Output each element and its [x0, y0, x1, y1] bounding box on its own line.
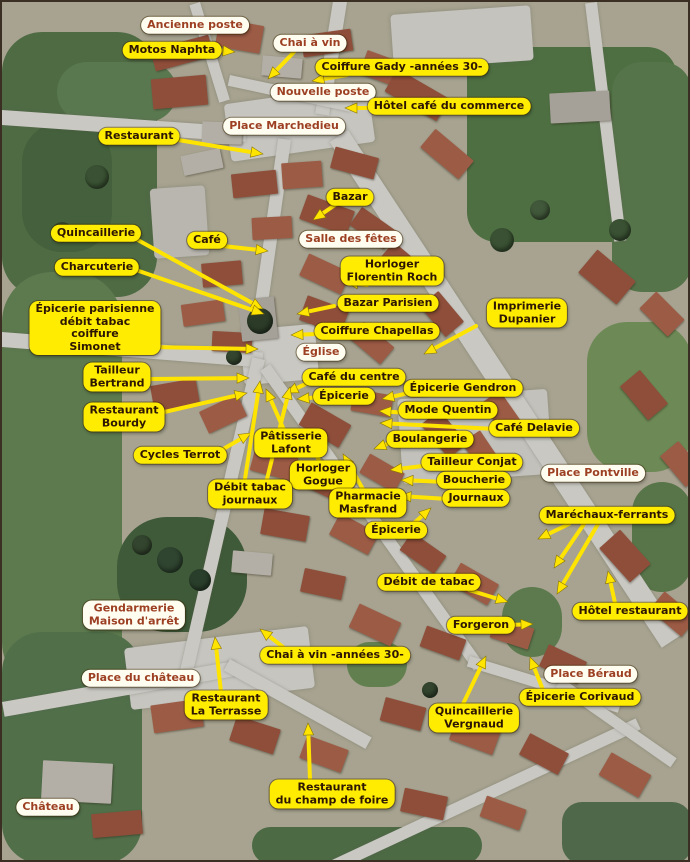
map-label-quincaillerie-vergnaud: Quincaillerie Vergnaud	[429, 704, 519, 733]
map-label-place-beraud: Place Béraud	[544, 666, 637, 683]
map-label-restaurant-bourdy: Restaurant Bourdy	[84, 403, 165, 432]
annotated-aerial-map: Ancienne posteMotos NaphtaChai à vinCoif…	[0, 0, 690, 862]
map-label-ancienne-poste: Ancienne poste	[141, 17, 249, 34]
map-label-bazar: Bazar	[326, 189, 373, 206]
map-label-cycles-terrot: Cycles Terrot	[134, 447, 227, 464]
map-label-hotel-cafe-du-commerce: Hôtel café du commerce	[368, 98, 531, 115]
map-label-place-marchedieu: Place Marchedieu	[223, 118, 345, 135]
map-label-journaux: Journaux	[442, 490, 509, 507]
map-label-imprimerie-dupanier: Imprimerie Dupanier	[487, 299, 567, 328]
map-label-mode-quentin: Mode Quentin	[398, 402, 497, 419]
label-overlay: Ancienne posteMotos NaphtaChai à vinCoif…	[2, 2, 688, 860]
map-label-chai-a-vin: Chai à vin	[274, 35, 347, 52]
map-label-nouvelle-poste: Nouvelle poste	[271, 84, 376, 101]
map-label-boulangerie: Boulangerie	[387, 431, 474, 448]
map-label-tailleur-bertrand: Tailleur Bertrand	[83, 363, 150, 392]
map-label-quincaillerie: Quincaillerie	[51, 225, 141, 242]
map-label-place-pontville: Place Pontville	[541, 465, 645, 482]
map-label-restaurant-nord: Restaurant	[99, 128, 180, 145]
map-label-coiffure-gady: Coiffure Gady -années 30-	[315, 59, 488, 76]
map-label-eglise: Église	[297, 344, 346, 361]
map-label-chai-a-vin-annees-30: Chai à vin -années 30-	[260, 647, 410, 664]
map-label-epicerie-parisienne-simonet: Épicerie parisienne débit tabac coiffure…	[29, 301, 160, 355]
map-label-debit-tabac-journaux: Débit tabac journaux	[208, 480, 292, 509]
map-label-horloger-florentin-roch: Horloger Florentin Roch	[341, 257, 444, 286]
map-label-chateau: Château	[16, 799, 79, 816]
map-label-bazar-parisien: Bazar Parisien	[338, 295, 439, 312]
map-label-epicerie-corivaud: Épicerie Corivaud	[520, 689, 641, 706]
map-label-restaurant-champ-de-foire: Restaurant du champ de foire	[270, 780, 395, 809]
map-label-motos-naphta: Motos Naphta	[123, 42, 222, 59]
map-label-cafe-delavie: Café Delavie	[489, 420, 579, 437]
map-label-debit-de-tabac: Débit de tabac	[378, 574, 481, 591]
map-label-cafe: Café	[187, 232, 227, 249]
map-label-pharmacie-masfrand: Pharmacie Masfrand	[329, 489, 406, 518]
map-label-epicerie-sud: Épicerie	[365, 522, 427, 539]
map-label-horloger-gogue: Horloger Gogue	[290, 461, 356, 490]
map-label-epicerie-gendron: Épicerie Gendron	[404, 380, 523, 397]
map-label-place-du-chateau: Place du château	[82, 670, 200, 687]
map-label-epicerie-centre: Épicerie	[313, 388, 375, 405]
map-label-tailleur-conjat: Tailleur Conjat	[421, 454, 522, 471]
map-label-boucherie: Boucherie	[437, 472, 511, 489]
map-label-restaurant-la-terrasse: Restaurant La Terrasse	[185, 691, 268, 720]
map-label-charcuterie: Charcuterie	[55, 259, 139, 276]
map-label-hotel-restaurant: Hôtel restaurant	[573, 603, 688, 620]
map-label-gendarmerie: Gendarmerie Maison d'arrêt	[83, 601, 185, 630]
map-label-cafe-du-centre: Café du centre	[302, 369, 405, 386]
map-label-forgeron: Forgeron	[447, 617, 515, 634]
map-label-salle-des-fetes: Salle des fêtes	[299, 231, 402, 248]
map-label-patisserie-lafont: Pâtisserie Lafont	[254, 429, 327, 458]
map-label-marechaux-ferrants: Maréchaux-ferrants	[540, 507, 675, 524]
map-label-coiffure-chapellas: Coiffure Chapellas	[314, 323, 439, 340]
